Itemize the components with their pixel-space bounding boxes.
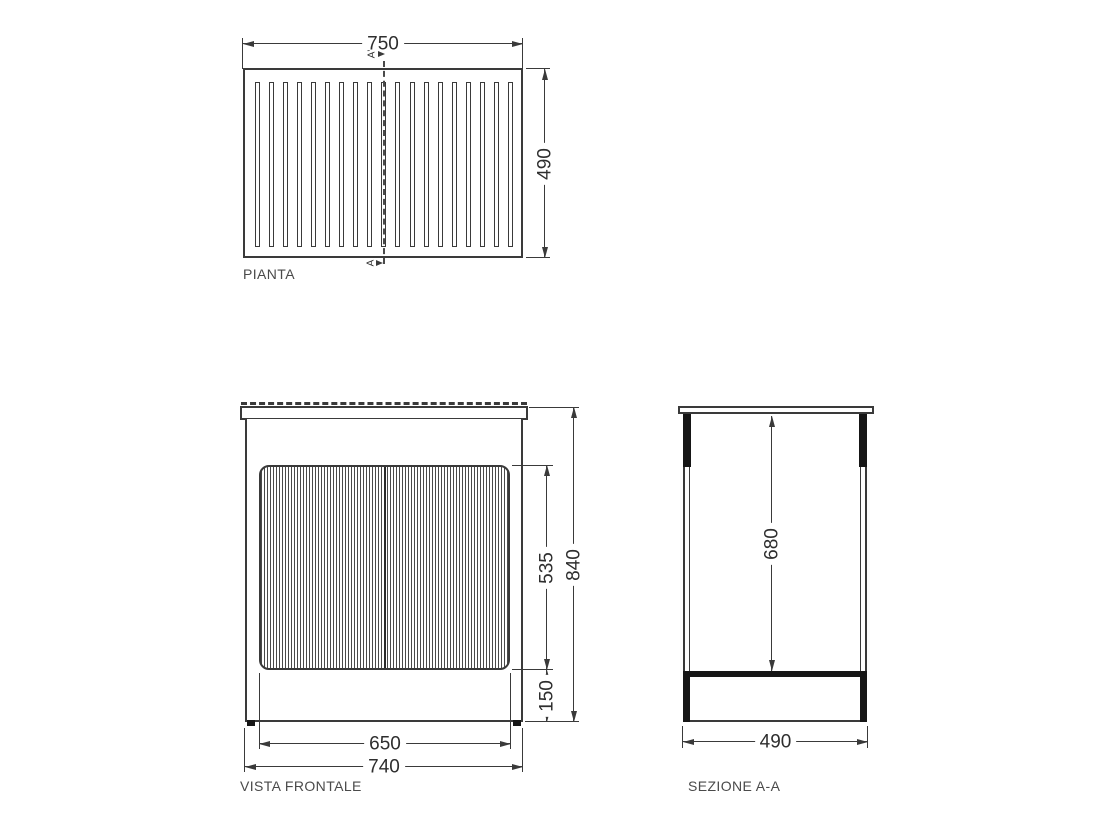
slat <box>395 82 400 247</box>
section-marker-bottom-label: A <box>366 260 376 267</box>
slat <box>480 82 485 247</box>
slat <box>410 82 415 247</box>
slat <box>325 82 330 247</box>
dim-arrow-left-icon <box>243 41 254 47</box>
dim-arrow-down-icon <box>769 660 775 671</box>
dim-arrow-right-icon <box>512 41 523 47</box>
section-cut-leg-right <box>860 671 867 722</box>
dim-cabinet-width: 740 <box>245 761 523 773</box>
section-cut-bottom-shelf <box>687 671 864 677</box>
slat <box>311 82 316 247</box>
countertop-flute-dashes <box>241 402 527 405</box>
technical-drawing-sheet: 750 A' A 490 PIANTA <box>0 0 1105 829</box>
section-marker-bottom: A <box>368 258 383 268</box>
slat <box>283 82 288 247</box>
slat <box>353 82 358 247</box>
slat <box>466 82 471 247</box>
door-panel <box>259 465 510 670</box>
dim-pianta-depth: 490 <box>539 69 551 258</box>
section-cut-panel-top-right <box>859 414 867 467</box>
dim-arrow-left-icon <box>245 764 256 770</box>
section-arrow-icon <box>378 51 385 57</box>
dim-door-panel-width: 650 <box>259 738 511 750</box>
slat <box>269 82 274 247</box>
dim-arrow-up-icon <box>769 416 775 427</box>
dim-value-150: 150 <box>536 675 559 717</box>
dim-value-490-section: 490 <box>755 731 797 754</box>
slat <box>494 82 499 247</box>
door-split-line <box>384 467 386 668</box>
countertop-section <box>678 406 874 414</box>
sezione-label: SEZIONE A-A <box>688 779 780 793</box>
slat <box>297 82 302 247</box>
dim-arrow-right-icon <box>500 741 511 747</box>
section-arrow-icon <box>376 260 383 266</box>
dim-value-490: 490 <box>534 143 557 185</box>
slat <box>424 82 429 247</box>
section-cut-leg-left <box>683 671 690 722</box>
section-marker-top: A' <box>368 49 385 59</box>
dim-interior-height: 680 <box>766 416 778 671</box>
dim-section-depth: 490 <box>683 736 868 748</box>
foot-right <box>513 720 521 726</box>
foot-left <box>247 720 255 726</box>
countertop-front <box>240 406 528 420</box>
pianta-label: PIANTA <box>243 267 295 281</box>
slat <box>367 82 372 247</box>
section-cut-panel-top-left <box>683 414 691 467</box>
dim-arrow-left-icon <box>683 739 694 745</box>
dim-arrow-right-icon <box>857 739 868 745</box>
dim-plinth-height: 150 <box>541 670 553 722</box>
section-cut-line <box>383 61 385 264</box>
dim-value-740: 740 <box>363 756 405 779</box>
section-bottom-line <box>683 720 867 722</box>
dim-arrow-left-icon <box>259 741 270 747</box>
slat <box>255 82 260 247</box>
dim-door-panel-height: 535 <box>541 465 553 670</box>
dim-arrow-up-icon <box>544 465 550 476</box>
dim-arrow-down-icon <box>571 711 577 722</box>
dim-arrow-down-icon <box>544 659 550 670</box>
slat <box>438 82 443 247</box>
vista-frontale-label: VISTA FRONTALE <box>240 779 362 793</box>
dim-arrow-up-icon <box>571 407 577 418</box>
dim-overall-height: 840 <box>568 407 580 722</box>
dim-value-680: 680 <box>761 523 784 565</box>
slat <box>508 82 513 247</box>
dim-arrow-up-icon <box>542 69 548 80</box>
slat <box>452 82 457 247</box>
dim-arrow-down-icon <box>542 247 548 258</box>
dim-value-535: 535 <box>536 547 559 589</box>
dim-arrow-right-icon <box>512 764 523 770</box>
dim-value-840: 840 <box>563 544 586 586</box>
dim-value-650: 650 <box>364 733 406 756</box>
slat <box>339 82 344 247</box>
section-marker-top-label: A' <box>367 50 377 59</box>
